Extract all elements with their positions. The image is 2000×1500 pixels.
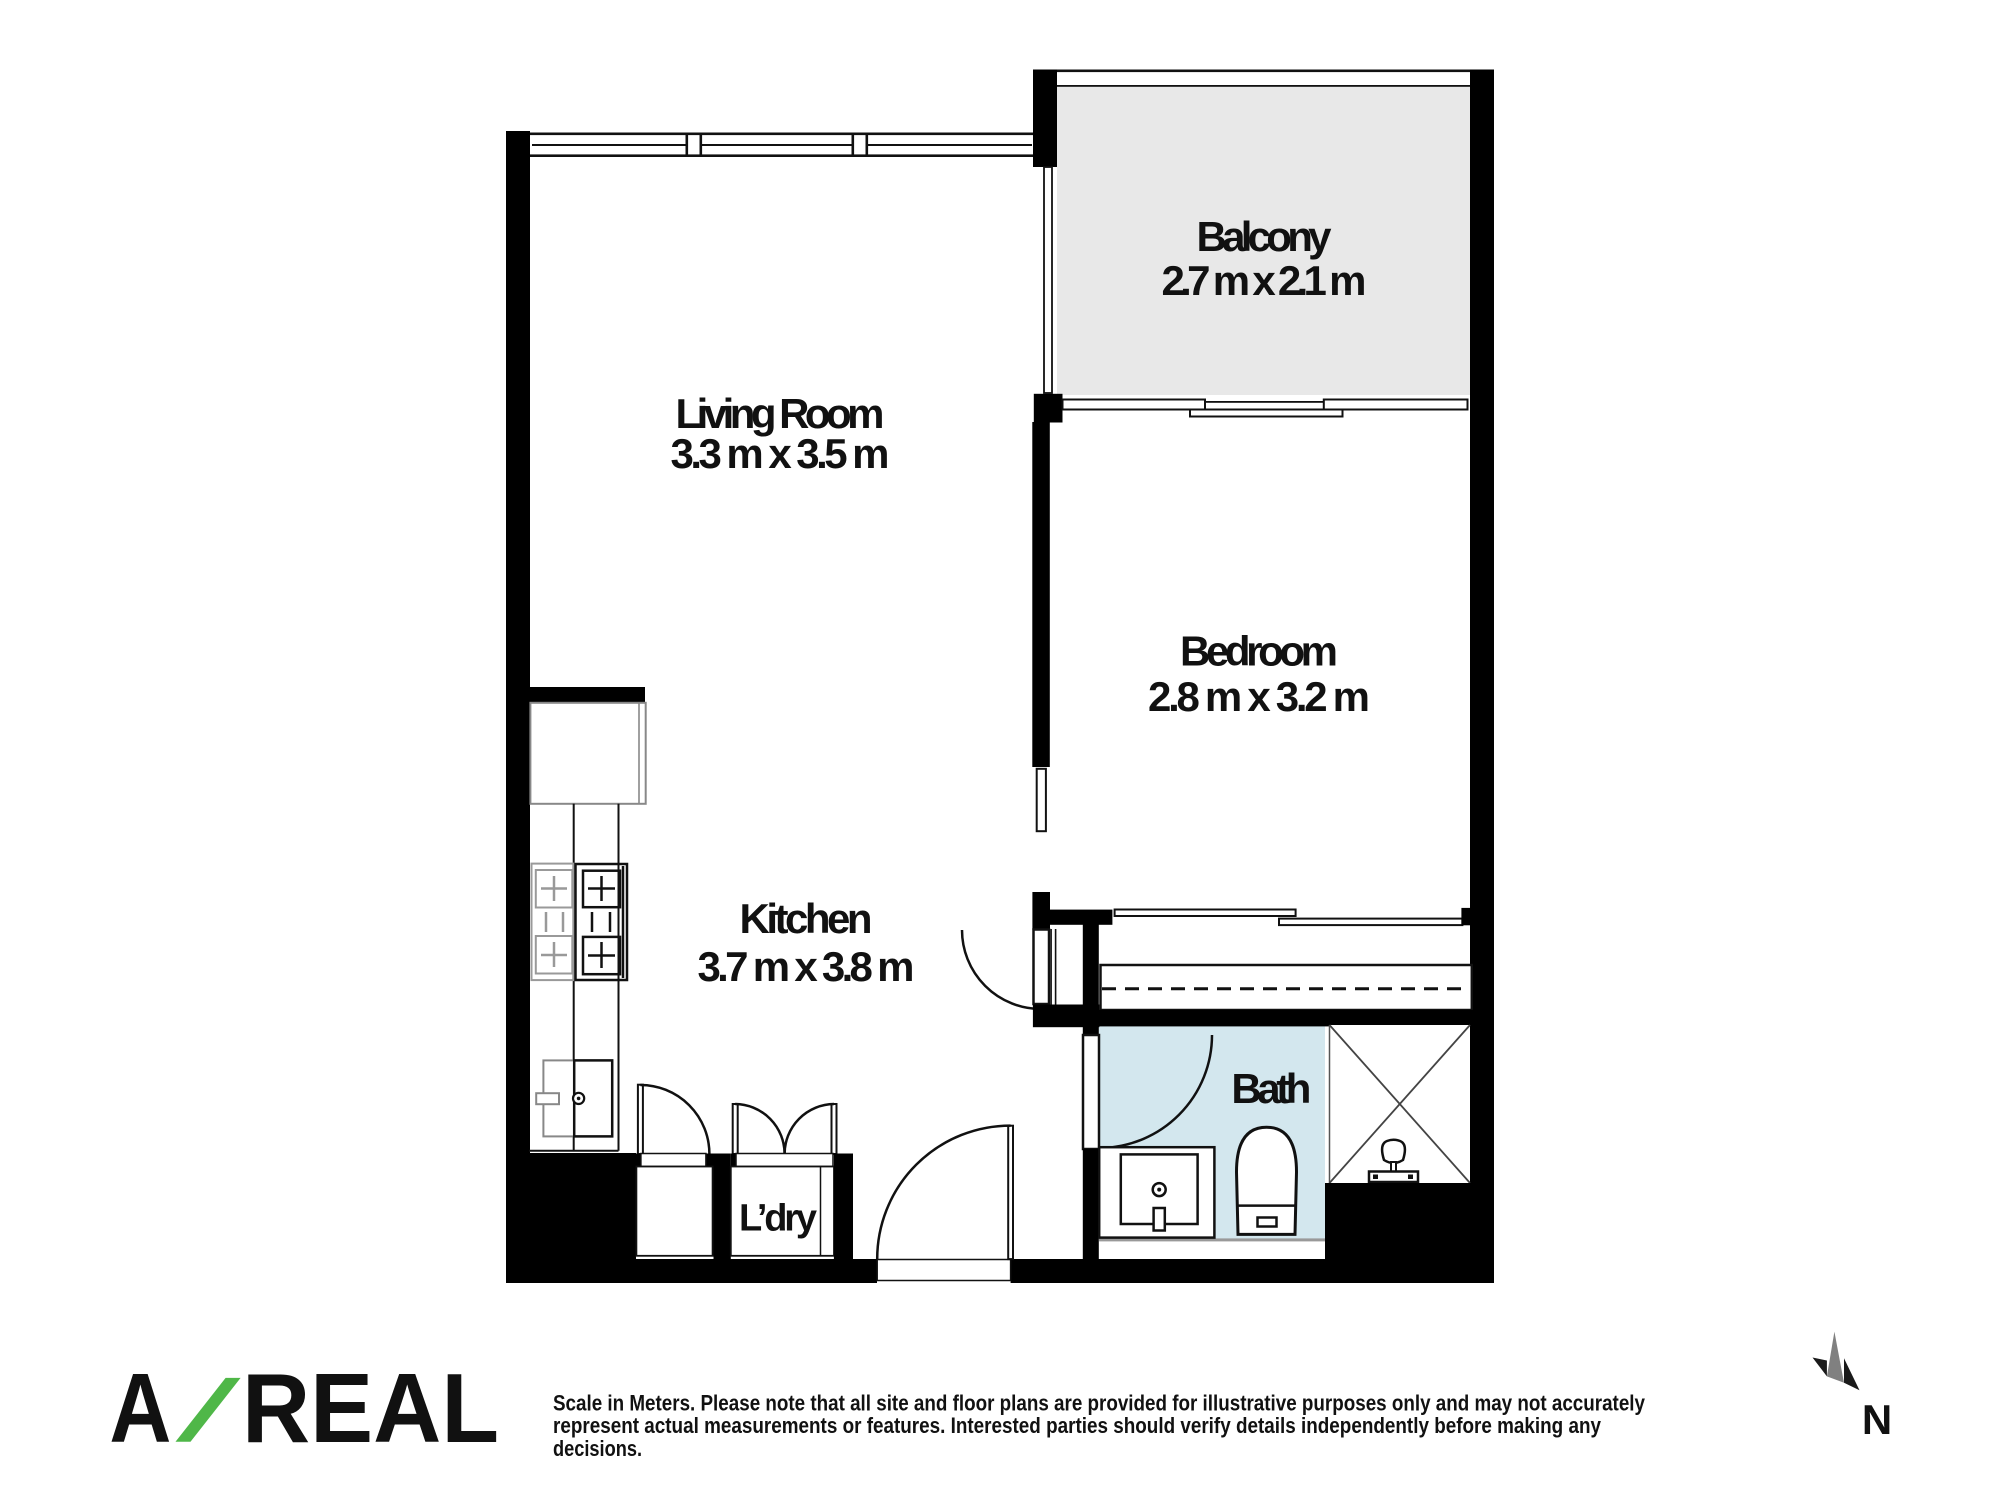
svg-text:Balcony: Balcony	[1197, 213, 1333, 260]
svg-text:REAL: REAL	[242, 1353, 499, 1463]
svg-text:Bath: Bath	[1231, 1065, 1311, 1112]
svg-text:A: A	[109, 1353, 171, 1463]
svg-text:3.7 m x 3.8 m: 3.7 m x 3.8 m	[698, 943, 915, 990]
svg-text:L’dry: L’dry	[739, 1198, 817, 1240]
svg-text:represent actual measurements: represent actual measurements or feature…	[553, 1413, 1601, 1438]
svg-text:decisions.: decisions.	[553, 1436, 642, 1461]
svg-text:Bedroom: Bedroom	[1180, 628, 1338, 675]
svg-text:2.8 m x 3.2 m: 2.8 m x 3.2 m	[1148, 673, 1370, 720]
svg-text:Kitchen: Kitchen	[740, 895, 873, 942]
svg-text:Scale in Meters. Please note t: Scale in Meters. Please note that all si…	[553, 1391, 1645, 1416]
svg-text:N: N	[1862, 1396, 1892, 1443]
svg-text:3.3 m x 3.5 m: 3.3 m x 3.5 m	[671, 430, 890, 477]
svg-text:2.7 m x 2.1 m: 2.7 m x 2.1 m	[1162, 257, 1367, 304]
